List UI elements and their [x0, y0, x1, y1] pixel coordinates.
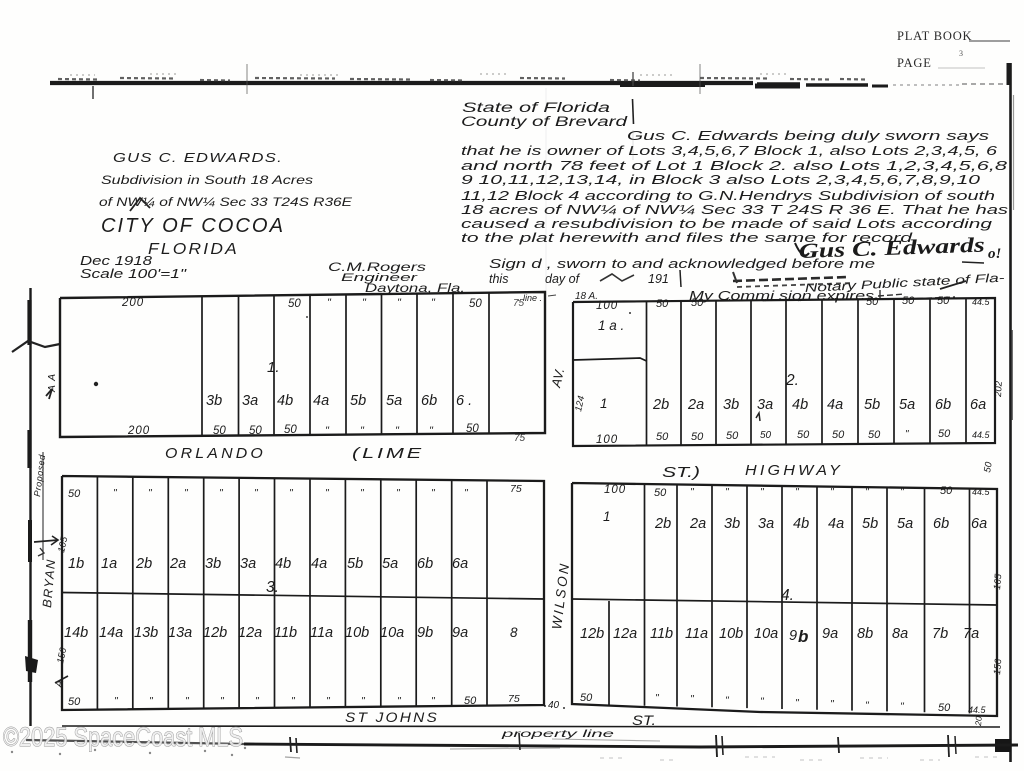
- svg-text:": ": [289, 487, 294, 499]
- svg-text:8b: 8b: [857, 626, 873, 642]
- svg-text:44.5: 44.5: [972, 430, 991, 440]
- svg-text:": ": [655, 692, 660, 704]
- svg-text:BRYAN: BRYAN: [40, 558, 58, 608]
- svg-text:ST.: ST.: [632, 712, 656, 728]
- svg-text:12b: 12b: [580, 626, 604, 642]
- svg-text:PLAT BOOK: PLAT BOOK: [897, 29, 972, 43]
- svg-text:2.: 2.: [785, 372, 799, 389]
- svg-text:": ": [185, 695, 190, 707]
- svg-text:": ": [325, 487, 330, 499]
- svg-text:1a: 1a: [101, 556, 117, 572]
- svg-text:50: 50: [691, 431, 704, 443]
- svg-text:Scale 100'=1": Scale 100'=1": [80, 267, 187, 281]
- svg-text:property line: property line: [500, 728, 614, 740]
- svg-text:50: 50: [797, 429, 810, 441]
- svg-text:caused a resubdivision to be m: caused a resubdivision to be made of sai…: [461, 216, 993, 231]
- svg-text:14a: 14a: [99, 625, 123, 641]
- svg-text:50: 50: [940, 485, 953, 497]
- svg-text:4a: 4a: [828, 516, 844, 532]
- svg-text:©2025 SpaceCoast MLS: ©2025 SpaceCoast MLS: [3, 722, 243, 752]
- svg-text:6b: 6b: [933, 516, 949, 532]
- svg-text:50: 50: [902, 295, 915, 307]
- svg-text:6a: 6a: [970, 397, 986, 413]
- svg-text:": ": [114, 695, 119, 707]
- svg-text:": ": [255, 695, 260, 707]
- svg-text:(LIME: (LIME: [352, 445, 424, 462]
- svg-text:": ": [431, 297, 436, 309]
- svg-text:50: 50: [726, 430, 739, 442]
- svg-text:": ": [690, 693, 695, 705]
- svg-text:2b: 2b: [654, 516, 671, 532]
- svg-text:ST.): ST.): [662, 464, 700, 481]
- svg-text:6b: 6b: [935, 397, 951, 413]
- svg-text:5b: 5b: [864, 397, 880, 413]
- svg-text:6a: 6a: [971, 516, 987, 532]
- svg-text:": ": [797, 298, 801, 309]
- svg-text:": ": [149, 695, 154, 707]
- svg-text:2b: 2b: [652, 397, 669, 413]
- svg-text:6 .: 6 .: [456, 393, 472, 409]
- svg-text:105: 105: [56, 535, 70, 553]
- svg-text:6b: 6b: [421, 393, 437, 409]
- svg-text:11b: 11b: [650, 626, 673, 642]
- svg-text:13b: 13b: [134, 625, 158, 641]
- svg-text:44.5: 44.5: [972, 487, 991, 497]
- svg-text:3b: 3b: [205, 556, 221, 572]
- svg-text:": ": [429, 425, 434, 437]
- svg-text:9a: 9a: [822, 626, 838, 642]
- svg-text:4b: 4b: [275, 556, 291, 572]
- svg-text:50: 50: [656, 298, 669, 310]
- svg-text:WILSON: WILSON: [549, 561, 572, 631]
- svg-text:": ": [830, 698, 835, 710]
- svg-text:": ": [220, 695, 225, 707]
- svg-text:14b: 14b: [64, 625, 88, 641]
- svg-text:AV.: AV.: [548, 367, 567, 390]
- svg-text:191: 191: [648, 272, 669, 286]
- svg-text:4.: 4.: [781, 587, 794, 604]
- svg-text:50: 50: [464, 695, 477, 707]
- svg-text:": ": [725, 486, 730, 498]
- svg-text:": ": [360, 487, 365, 499]
- svg-text:": ": [361, 695, 366, 707]
- svg-text:5a: 5a: [897, 516, 913, 532]
- svg-text:8: 8: [510, 625, 518, 640]
- svg-text:1 a .: 1 a .: [598, 318, 624, 333]
- svg-text:50: 50: [654, 487, 667, 499]
- svg-text:that he is owner of Lots 3,4,5: that he is owner of Lots 3,4,5,6,7 Block…: [461, 143, 998, 158]
- svg-text:200: 200: [121, 297, 144, 309]
- svg-text:11,12 Block 4 according to G.N: 11,12 Block 4 according to G.N.Hendrys S…: [461, 188, 995, 203]
- svg-text:12b: 12b: [203, 625, 227, 641]
- svg-text:18 A.: 18 A.: [575, 291, 598, 302]
- svg-text:": ": [795, 697, 800, 709]
- svg-text:": ": [254, 487, 259, 499]
- svg-text:this: this: [489, 272, 508, 286]
- svg-text:5a: 5a: [382, 556, 398, 572]
- svg-text:Gus C. Edwards being duly swor: Gus C. Edwards being duly sworn says: [627, 128, 990, 143]
- svg-text:": ": [327, 297, 332, 309]
- svg-text:50: 50: [284, 424, 297, 436]
- svg-text:50: 50: [68, 696, 81, 708]
- svg-text:": ": [725, 694, 730, 706]
- svg-text:50: 50: [760, 430, 772, 441]
- svg-text:Sign d , sworn to and acknowle: Sign d , sworn to and acknowledged befor…: [489, 257, 875, 271]
- svg-text:11a: 11a: [310, 625, 333, 641]
- svg-text:": ": [905, 429, 909, 440]
- svg-text:75: 75: [514, 433, 526, 444]
- svg-text:": ": [760, 486, 765, 498]
- svg-text:50: 50: [937, 295, 950, 307]
- svg-text:100: 100: [596, 434, 618, 446]
- svg-text:9: 9: [789, 628, 797, 644]
- svg-text:": ": [326, 695, 331, 707]
- svg-text:5a: 5a: [386, 393, 402, 409]
- svg-text:50: 50: [868, 429, 881, 441]
- svg-text:50: 50: [938, 702, 951, 714]
- svg-text:50: 50: [938, 428, 951, 440]
- svg-text:50: 50: [866, 296, 879, 308]
- svg-text:4a: 4a: [827, 397, 843, 413]
- svg-text:": ": [397, 695, 402, 707]
- svg-text:1: 1: [600, 396, 608, 411]
- svg-text:50: 50: [288, 298, 301, 310]
- svg-text:3b: 3b: [723, 397, 739, 413]
- svg-text:10b: 10b: [719, 626, 743, 642]
- svg-text:75: 75: [513, 298, 525, 309]
- svg-text:3a: 3a: [240, 556, 256, 572]
- svg-text:ST JOHNS: ST JOHNS: [345, 709, 439, 725]
- svg-text:75: 75: [510, 483, 522, 495]
- svg-text:50: 50: [68, 488, 81, 500]
- svg-text:3b: 3b: [724, 516, 740, 532]
- svg-text:ORLANDO: ORLANDO: [165, 445, 266, 462]
- svg-text:": ": [760, 696, 765, 708]
- svg-text:": ": [396, 487, 401, 499]
- svg-text:50: 50: [469, 298, 482, 310]
- svg-text:100: 100: [604, 484, 626, 496]
- svg-text:2a: 2a: [687, 397, 704, 413]
- svg-text:": ": [291, 695, 296, 707]
- svg-text:": ": [113, 487, 118, 499]
- svg-text:": ": [184, 487, 189, 499]
- svg-text:State of Florida: State of Florida: [462, 100, 611, 115]
- svg-text:11a: 11a: [685, 626, 708, 642]
- svg-text:Subdivision in South 18 Acres: Subdivision in South 18 Acres: [101, 173, 313, 187]
- svg-text:3b: 3b: [206, 393, 222, 409]
- svg-text:20: 20: [973, 716, 984, 728]
- svg-text:": ": [219, 487, 224, 499]
- svg-text:40: 40: [548, 700, 560, 711]
- svg-text:165: 165: [992, 573, 1004, 590]
- svg-text:4b: 4b: [277, 393, 293, 409]
- svg-text:75: 75: [508, 693, 520, 705]
- svg-text:b: b: [798, 627, 808, 646]
- svg-text:7b: 7b: [932, 626, 948, 642]
- svg-text:County of Brevard: County of Brevard: [461, 114, 628, 129]
- svg-text:9a: 9a: [452, 625, 468, 641]
- svg-text:50: 50: [691, 297, 704, 309]
- svg-text:3a: 3a: [757, 397, 773, 413]
- svg-text:156: 156: [992, 658, 1004, 675]
- svg-text:": ": [397, 297, 402, 309]
- svg-text:and north 78 feet of Lot 1 Blo: and north 78 feet of Lot 1 Block 2. also…: [461, 158, 1008, 173]
- svg-text:4b: 4b: [793, 516, 809, 532]
- svg-text:7a: 7a: [963, 626, 979, 642]
- svg-text:": ": [865, 699, 870, 711]
- svg-text:": ": [431, 487, 436, 499]
- svg-text:o!: o!: [988, 246, 1001, 262]
- svg-text:1.: 1.: [267, 359, 280, 376]
- svg-text:5b: 5b: [347, 556, 363, 572]
- svg-text:HIGHWAY: HIGHWAY: [745, 462, 843, 479]
- svg-text:18 acres of NW¼ of NW¼ Sec 33: 18 acres of NW¼ of NW¼ Sec 33 T 24S R 36…: [461, 202, 1009, 217]
- svg-text:6b: 6b: [417, 556, 433, 572]
- svg-text:3a: 3a: [758, 516, 774, 532]
- svg-text:100: 100: [596, 300, 618, 312]
- svg-text:Dec 1918: Dec 1918: [80, 254, 152, 268]
- svg-text:13a: 13a: [168, 625, 192, 641]
- svg-text:12a: 12a: [613, 626, 637, 642]
- svg-text:": ": [900, 701, 905, 713]
- svg-text:GUS C. EDWARDS.: GUS C. EDWARDS.: [113, 150, 283, 165]
- svg-text:9 10,11,12,13,14, in Block 3 a: 9 10,11,12,13,14, in Block 3 also Lots 2…: [461, 172, 981, 187]
- svg-text:50: 50: [656, 431, 669, 443]
- svg-text:3: 3: [959, 49, 963, 58]
- svg-text:Proposed: Proposed: [32, 453, 47, 497]
- svg-text:2a: 2a: [689, 516, 706, 532]
- svg-text:": ": [726, 298, 730, 309]
- svg-text:": ": [148, 487, 153, 499]
- svg-text:day of: day of: [545, 272, 581, 286]
- svg-text:10a: 10a: [754, 626, 778, 642]
- svg-text:1b: 1b: [68, 556, 84, 572]
- svg-text:200: 200: [127, 425, 150, 437]
- svg-text:5b: 5b: [862, 516, 878, 532]
- svg-text:4a: 4a: [311, 556, 327, 572]
- svg-text:5a: 5a: [899, 397, 915, 413]
- svg-text:1: 1: [603, 509, 611, 524]
- svg-text:50: 50: [249, 425, 262, 437]
- svg-text:50: 50: [982, 460, 995, 473]
- svg-text:3a: 3a: [242, 393, 258, 409]
- svg-text:": ": [795, 486, 800, 498]
- svg-text:6a: 6a: [452, 556, 468, 572]
- svg-text:8a: 8a: [892, 626, 908, 642]
- svg-text:50: 50: [213, 425, 226, 437]
- svg-text:FLORIDA: FLORIDA: [148, 241, 239, 258]
- svg-text:": ": [464, 487, 469, 499]
- svg-text:4a: 4a: [313, 393, 329, 409]
- svg-text:202: 202: [993, 380, 1005, 398]
- svg-text:11b: 11b: [274, 625, 297, 641]
- svg-text:9b: 9b: [417, 625, 433, 641]
- svg-text:156: 156: [55, 646, 69, 664]
- svg-text:50: 50: [466, 423, 479, 435]
- svg-text:10a: 10a: [380, 625, 404, 641]
- svg-text:2a: 2a: [169, 556, 186, 572]
- svg-text:2b: 2b: [135, 556, 152, 572]
- svg-text:50: 50: [580, 692, 593, 704]
- svg-text:PAGE: PAGE: [897, 56, 932, 70]
- svg-text:": ": [362, 297, 367, 309]
- svg-text:50: 50: [832, 429, 845, 441]
- svg-text:": ": [762, 298, 766, 309]
- svg-text:124: 124: [573, 395, 587, 413]
- svg-text:": ": [690, 486, 695, 498]
- svg-text:44.5: 44.5: [972, 297, 991, 307]
- svg-text:5b: 5b: [350, 393, 366, 409]
- svg-text:4b: 4b: [792, 397, 808, 413]
- svg-text:CITY OF COCOA: CITY OF COCOA: [101, 215, 285, 237]
- svg-text:": ": [832, 297, 836, 308]
- svg-text:12a: 12a: [238, 625, 262, 641]
- svg-text:3.: 3.: [266, 579, 279, 596]
- svg-text:10b: 10b: [345, 625, 369, 641]
- svg-text:44.5: 44.5: [968, 705, 987, 715]
